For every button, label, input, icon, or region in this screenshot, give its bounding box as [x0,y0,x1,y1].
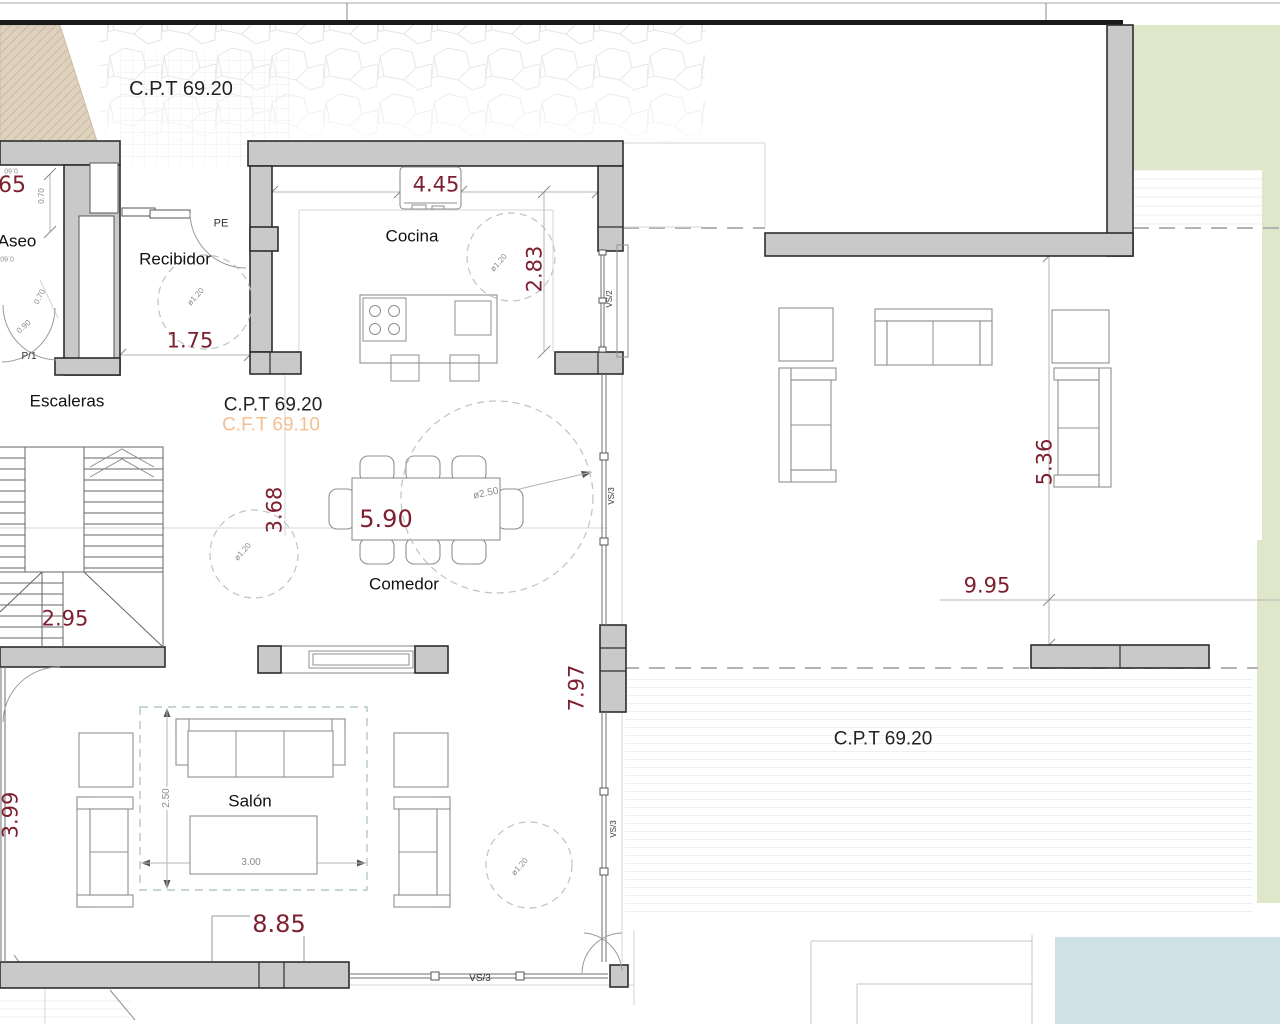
door-label-p1: P/1 [21,352,36,362]
site-level-mid-cft: C.F.T 69.10 [222,416,320,435]
dim-070-a: 0.70 [38,188,46,204]
room-label-recibidor: Recibidor [139,251,211,268]
room-label-comedor: Comedor [369,576,439,593]
dim-escaleras-width: 2.95 [42,609,89,630]
dim-aseo-width: 65 [0,175,26,197]
north-boundary [0,3,1280,25]
terrace-furniture [779,308,1111,487]
window-label-vs3-upper: VS/3 [608,487,616,504]
section-dashed-lines [623,228,1280,668]
site-level-top: C.P.T 69.20 [129,79,233,99]
room-label-escaleras: Escaleras [30,393,105,410]
room-label-cocina: Cocina [386,228,439,245]
dim-terrace-depth: 5.36 [1035,439,1056,486]
kitchen-fixtures [360,167,497,381]
dim-comedor-left: 3.68 [265,487,286,534]
dim-sofa-300: 3.00 [239,858,262,868]
door-label-pe: PE [214,219,229,230]
site-level-mid-cpt: C.P.T 69.20 [224,396,323,415]
floor-plan: C.P.T 69.20 C.P.T 69.20 C.F.T 69.10 C.P.… [0,0,1280,1024]
dim-060-b: 0.60 [0,255,14,262]
dim-cocina-depth: 2.83 [525,246,546,293]
dim-terrace-width: 9.95 [964,576,1011,597]
dim-060-a: 0.60 [4,167,18,174]
dim-salon-width: 8.85 [250,912,307,936]
dim-recibidor-width: 1.75 [167,331,214,352]
room-label-salon: Salón [228,793,271,810]
dim-salon-left: 3.99 [1,792,22,839]
window-label-vs2: VS/2 [606,290,614,307]
dim-cocina-width: 4.45 [413,175,460,196]
window-label-vs3-lower: VS/3 [610,820,618,837]
room-label-aseo: Aseo [0,233,36,250]
plan-linework [0,0,1280,1024]
dim-sofa-250: 2.50 [162,786,172,809]
window-label-vs3-south: VS/3 [469,974,491,984]
dim-salon-height: 7.97 [567,665,588,712]
site-level-terrace: C.P.T 69.20 [834,730,933,749]
dim-comedor-width: 5.90 [359,507,412,531]
